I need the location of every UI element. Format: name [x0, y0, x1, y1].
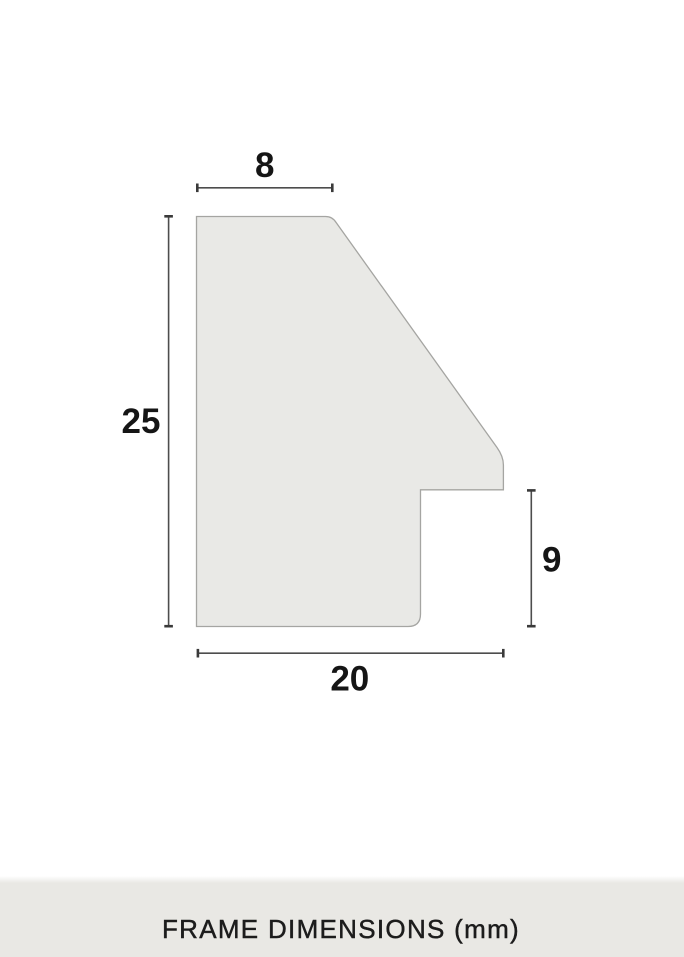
- svg-text:25: 25: [122, 402, 161, 441]
- svg-text:FRAME DIMENSIONS (mm): FRAME DIMENSIONS (mm): [162, 914, 520, 944]
- svg-text:20: 20: [330, 660, 369, 699]
- svg-text:9: 9: [542, 540, 561, 579]
- svg-text:8: 8: [255, 146, 274, 185]
